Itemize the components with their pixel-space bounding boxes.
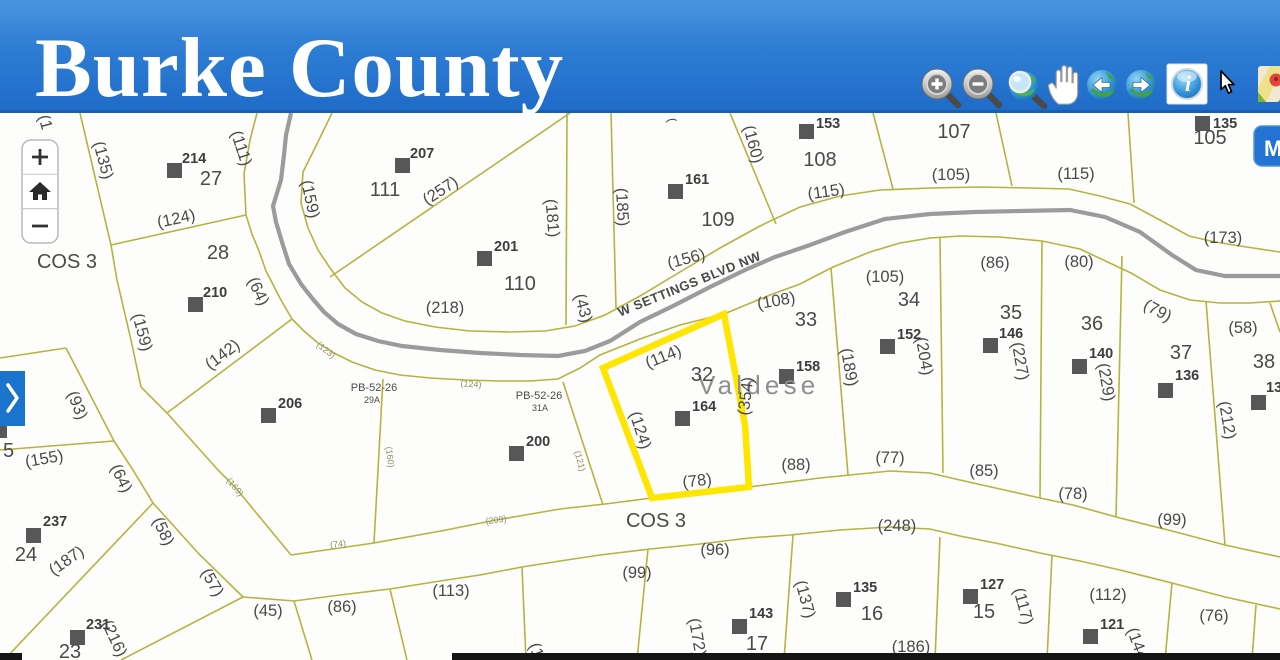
svg-text:37: 37 [1170,342,1192,364]
svg-text:143: 143 [749,606,773,622]
svg-text:153: 153 [816,116,840,132]
svg-text:109: 109 [701,209,734,231]
svg-text:31A: 31A [532,403,548,413]
svg-text:(78): (78) [1058,485,1087,503]
svg-text:207: 207 [410,146,434,162]
svg-text:COS 3: COS 3 [626,510,686,532]
svg-text:16: 16 [861,603,883,625]
svg-text:(85): (85) [969,462,998,480]
svg-text:(96): (96) [700,541,729,559]
svg-text:108: 108 [803,149,836,171]
svg-text:210: 210 [203,285,227,301]
svg-text:136: 136 [1175,368,1199,384]
svg-text:(86): (86) [327,598,356,616]
svg-text:135: 135 [853,580,877,596]
svg-text:(78): (78) [681,470,712,491]
svg-text:(113): (113) [432,582,469,600]
svg-text:24: 24 [15,544,37,566]
svg-text:(124): (124) [460,378,482,389]
svg-text:32: 32 [691,364,713,386]
svg-text:(99): (99) [622,564,651,582]
svg-text:28: 28 [207,242,229,264]
svg-text:133: 133 [1266,380,1280,396]
svg-text:140: 140 [1089,346,1113,362]
svg-text:(112): (112) [1089,586,1126,604]
svg-text:(88): (88) [781,456,810,474]
svg-text:i: i [1185,71,1192,96]
svg-text:237: 237 [43,514,67,530]
svg-text:COS 3: COS 3 [37,251,97,273]
svg-text:17: 17 [746,633,768,655]
svg-text:(218): (218) [426,299,465,317]
svg-text:23: 23 [59,641,81,660]
svg-text:(248): (248) [878,517,917,535]
svg-text:PB-52-26: PB-52-26 [351,382,397,394]
svg-text:107: 107 [937,121,970,143]
svg-text:(99): (99) [1157,511,1186,529]
svg-text:111: 111 [370,179,400,201]
svg-text:206: 206 [278,396,302,412]
svg-text:164: 164 [692,399,716,415]
svg-text:(115): (115) [1057,165,1094,183]
svg-text:(86): (86) [980,254,1009,272]
svg-text:27: 27 [200,168,222,190]
svg-text:214: 214 [182,151,206,167]
svg-text:29A: 29A [364,395,380,405]
svg-text:(45): (45) [253,602,282,620]
svg-text:35: 35 [1000,302,1022,324]
svg-text:110: 110 [504,273,536,295]
svg-text:(58): (58) [1228,319,1257,337]
svg-text:33: 33 [795,309,817,331]
svg-text:(173): (173) [1204,229,1243,247]
svg-text:(181): (181) [541,198,562,238]
svg-text:121: 121 [1100,617,1124,633]
svg-text:(185): (185) [612,187,632,226]
svg-text:PB-52-26: PB-52-26 [516,390,562,402]
svg-text:(105): (105) [866,268,905,286]
svg-text:38: 38 [1253,351,1275,373]
svg-text:34: 34 [898,289,920,311]
svg-text:(76): (76) [1199,607,1228,625]
svg-text:146: 146 [999,326,1023,342]
svg-text:161: 161 [685,172,709,188]
svg-text:(77): (77) [875,449,904,467]
svg-text:(80): (80) [1064,253,1093,271]
svg-text:201: 201 [494,239,518,255]
svg-text:36: 36 [1081,313,1103,335]
svg-text:5: 5 [3,440,14,462]
svg-text:200: 200 [526,434,550,450]
svg-text:Burke County: Burke County [35,21,564,115]
svg-text:M: M [1264,136,1280,161]
svg-text:(105): (105) [932,166,971,184]
svg-text:15: 15 [973,601,995,623]
svg-text:127: 127 [980,577,1004,593]
svg-text:158: 158 [796,359,820,375]
svg-text:135: 135 [1213,116,1237,132]
